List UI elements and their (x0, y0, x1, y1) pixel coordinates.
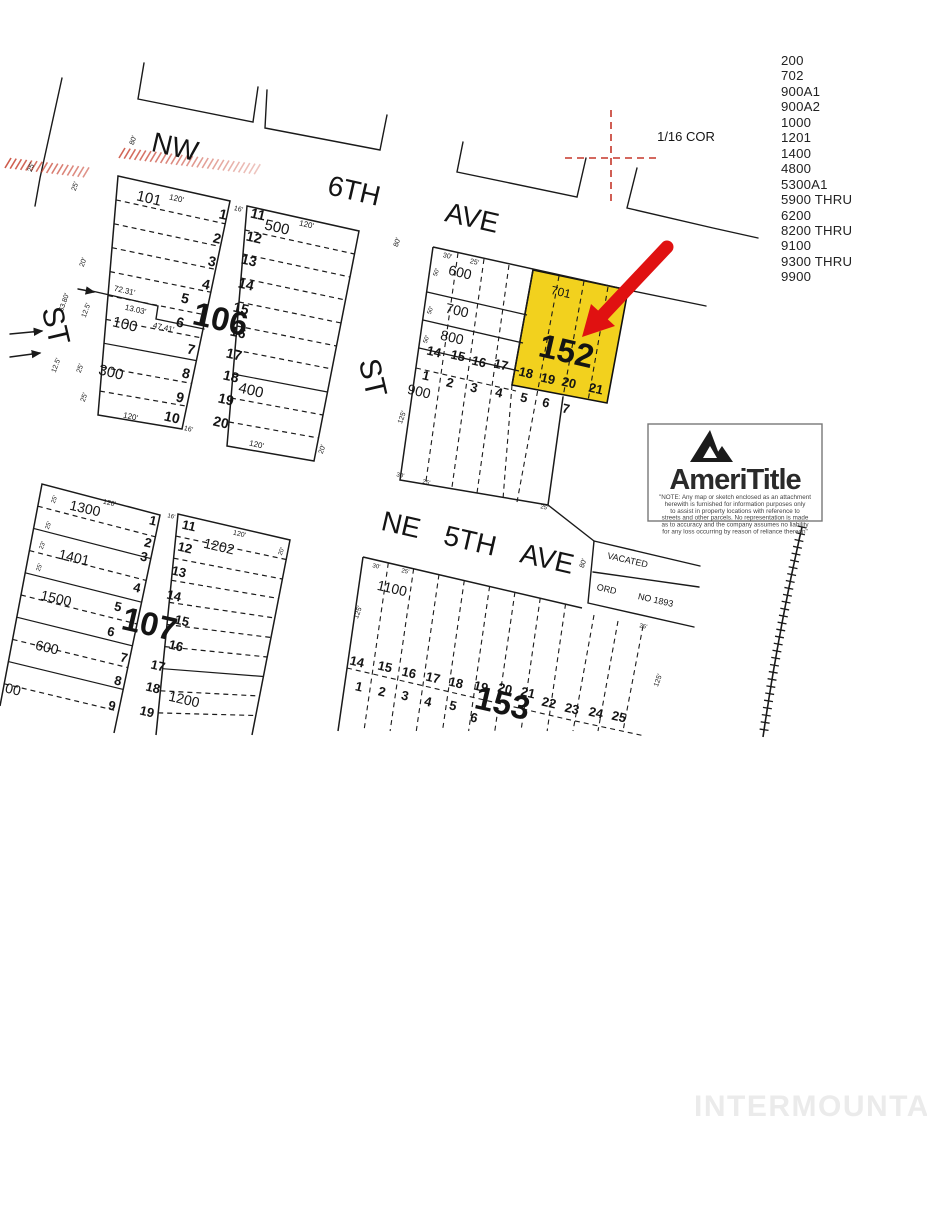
hatch-stroke (119, 148, 125, 158)
lot-number: 3 (469, 379, 479, 395)
lot-number: 6 (541, 394, 551, 410)
dimension: 120' (168, 193, 185, 205)
lot-number: 9 (175, 388, 186, 405)
map-labels: NW6THAVESTSTNE5THAVE1/16 COR101100300500… (4, 126, 715, 727)
watermark: INTERMOUNTAIN (694, 1090, 927, 1124)
parcel-number: 1200 (167, 688, 201, 711)
railroad-tie (776, 629, 785, 631)
lot-number: 11 (181, 517, 198, 535)
lot-line (426, 253, 458, 481)
dimension: 125' (653, 673, 664, 688)
block-106-right (227, 206, 359, 461)
hatch-stroke (10, 159, 16, 169)
lot-number: 3 (139, 548, 149, 564)
dimension: 25' (45, 521, 53, 530)
railroad-tie (790, 560, 799, 562)
lot-line (243, 254, 350, 277)
parcel-number: 101 (135, 188, 163, 210)
railroad-tie (784, 587, 793, 589)
dimension: 80' (129, 135, 139, 146)
lot-line (231, 398, 323, 415)
parcel-number: 100 (111, 314, 139, 336)
lot-number: 5 (180, 289, 191, 306)
railroad-tie (779, 615, 788, 617)
lot-line (112, 248, 216, 270)
dimension: 50' (433, 268, 441, 277)
lot-number: 12 (176, 539, 193, 557)
lot-number: 11 (249, 205, 267, 224)
lot-line (239, 302, 341, 323)
lot-number: 5 (519, 389, 529, 405)
dimension: 20' (278, 547, 286, 556)
parcel-number: 800 (439, 327, 466, 348)
hatch-stroke (52, 164, 58, 174)
hatch-stroke (228, 161, 234, 171)
logo-disclaimer: "NOTE: Any map or sketch enclosed as an … (659, 494, 811, 536)
hatch-stroke (124, 149, 130, 159)
lot-number: 22 (540, 694, 557, 712)
railroad-track (760, 526, 807, 737)
hatch-stroke (73, 166, 79, 176)
dimension: 20' (79, 257, 89, 268)
lot-line (229, 422, 319, 438)
railroad-tie (786, 581, 795, 583)
lot-number: 8 (181, 364, 192, 381)
lot-line (116, 200, 225, 224)
railroad-tie (787, 574, 796, 576)
lot-number: 1 (421, 367, 431, 383)
street-st-left: ST (35, 303, 76, 348)
railroad-tie (774, 643, 783, 645)
parcel-number: 1401 (57, 546, 91, 569)
block-106-right-outline (227, 206, 359, 461)
parcel-number: 00 (4, 680, 23, 699)
railroad-tie (782, 601, 791, 603)
railroad-tie (775, 636, 784, 638)
lot-number: 3 (400, 687, 410, 703)
dimension: 25' (51, 495, 59, 504)
hatch-stroke (62, 165, 68, 175)
railroad-tie (762, 715, 771, 716)
lot-number: 7 (119, 649, 129, 665)
lot-number: 9 (107, 697, 117, 713)
parcel-number: 1202 (202, 535, 236, 558)
vacated-label: VACATED (606, 551, 649, 570)
lot-number: 12 (245, 228, 264, 247)
dimension: 125' (397, 410, 408, 425)
lot-number: 17 (424, 669, 441, 687)
dimension: 120' (102, 499, 116, 509)
block-outline-top-u1 (138, 63, 258, 122)
lot-number: 17 (225, 345, 244, 364)
logo-disclaimer-line: for any loss occurring by reason of reli… (662, 529, 807, 536)
railroad-tie (761, 722, 770, 723)
dimension: 30' (372, 563, 381, 571)
railroad-tie (763, 707, 772, 708)
lot-number: 8 (113, 672, 123, 688)
parcel-list: 200 702 900A1 900A2 1000 1201 1400 4800 … (781, 53, 852, 285)
hatch-stroke (135, 150, 141, 160)
lot-number: 6 (175, 313, 186, 330)
dimension: 80' (393, 237, 403, 248)
parcel-number: 600 (34, 637, 61, 658)
lot-line (34, 528, 151, 558)
railroad-tie (768, 679, 777, 680)
lot-number: 18 (447, 674, 464, 692)
street-6th-ave: AVE (442, 197, 502, 239)
hatch-stroke (83, 167, 89, 177)
parcel-number: 900 (406, 381, 433, 402)
lot-number: 17 (492, 356, 509, 374)
dimension: 13.03' (124, 303, 147, 317)
lot-line (163, 669, 264, 677)
lot-line (235, 350, 332, 369)
railroad-tie (764, 700, 773, 701)
railroad-tie (766, 686, 775, 687)
lot-number: 7 (186, 340, 197, 357)
street-5th: 5TH (441, 520, 500, 562)
lot-number: 4 (423, 693, 434, 709)
lot-number: 14 (348, 653, 366, 671)
hatch-stroke (129, 149, 135, 159)
dimension: 25' (422, 479, 431, 487)
lot-line (158, 713, 256, 716)
lot-number: 2 (377, 683, 387, 699)
hatch-stroke (244, 163, 250, 173)
hatch-stroke (218, 160, 224, 170)
parcel-number: 1100 (376, 577, 409, 599)
dimension: 125' (353, 605, 364, 620)
lot-line (104, 343, 196, 360)
lot-number: 4 (132, 579, 143, 595)
dimension: 72.31' (113, 284, 136, 298)
railroad-tie (760, 729, 769, 730)
lot-number: 2 (445, 374, 455, 390)
lot-number: 19 (217, 390, 236, 409)
hatch-stroke (5, 158, 11, 168)
dimension: 25' (401, 568, 410, 576)
hatch-stroke (213, 159, 219, 169)
dimension: 16' (233, 205, 243, 214)
dimension: 25' (540, 504, 549, 512)
lot-number: 17 (149, 657, 166, 675)
dimension: 12.5' (51, 357, 63, 373)
ameritit-logo-box: AmeriTitle "NOTE: Any map or sketch encl… (648, 424, 822, 536)
lot-line (241, 278, 346, 300)
lot-number: 19 (138, 703, 155, 721)
lot-line (114, 224, 220, 247)
hatch-stroke (249, 164, 255, 174)
hatch-stroke (202, 158, 208, 168)
lot-number: 18 (144, 679, 161, 697)
lot-line (174, 558, 283, 579)
lot-line (477, 265, 509, 493)
street-ne: NE (379, 505, 424, 544)
dimension: 25' (71, 181, 81, 192)
railroad-line (763, 527, 802, 737)
lot-number: 18 (222, 367, 241, 386)
lot-number: 5 (113, 598, 123, 614)
sixth-ave-north-line-east (627, 168, 758, 238)
line-east-of-parcel (628, 290, 706, 306)
lot-line (13, 639, 128, 667)
lot-number: 1 (148, 512, 158, 528)
sixth-ave-north-line (457, 142, 586, 197)
dimension: 25' (639, 623, 648, 631)
dimension: 25' (36, 563, 44, 572)
lot-number: 16 (400, 664, 417, 682)
dimension: 120' (248, 439, 265, 451)
dimension: 23' (39, 541, 47, 550)
ord-label: ORD (596, 582, 618, 596)
railroad-tie (769, 672, 778, 674)
lot-number: 16 (167, 637, 184, 655)
lot-line (503, 385, 512, 499)
hatch-stroke (21, 160, 27, 170)
block-outline-top-left-street-edge (35, 78, 62, 206)
logo-name: AmeriTitle (669, 464, 801, 496)
lot-line (237, 326, 337, 346)
lot-number: 14 (165, 587, 183, 605)
dimension: 50' (427, 306, 435, 315)
railroad-tie (765, 693, 774, 694)
hatch-stroke (197, 157, 203, 167)
dimension: 12.5' (81, 302, 93, 318)
lot-line (171, 580, 278, 598)
dimension: 16' (183, 425, 193, 434)
lot-number: 1 (354, 678, 364, 694)
lot-line (17, 617, 133, 646)
street-st-mid: ST (352, 355, 393, 400)
parcel-number: 1500 (39, 587, 73, 610)
dimension: 120' (122, 411, 139, 423)
railroad-tie (780, 608, 789, 610)
dimension: 16' (167, 513, 176, 521)
lot-number: 15 (449, 347, 466, 365)
hatch-stroke (223, 160, 229, 170)
lot-number: 23 (563, 700, 580, 718)
parcel-number: 400 (237, 380, 265, 402)
lot-line (8, 662, 123, 690)
lot-number: 14 (425, 343, 443, 361)
lot-number: 13 (170, 563, 187, 581)
hatch-stroke (140, 150, 146, 160)
railroad-tie (783, 594, 792, 596)
lot-number: 10 (163, 408, 182, 427)
hatch-stroke (207, 159, 213, 169)
parcel-number: 1300 (68, 497, 102, 520)
ord-number-label: NO 1893 (637, 591, 674, 609)
lot-number: 15 (376, 658, 393, 676)
railroad-tie (770, 664, 779, 666)
railroad-tie (778, 622, 787, 624)
railroad-tie (771, 657, 780, 659)
street-6th: 6TH (325, 170, 384, 212)
tick-arrow (10, 331, 42, 334)
dimension: 30' (396, 472, 405, 480)
street-lines (10, 63, 758, 627)
dimension: 120' (232, 530, 246, 540)
block-outline-top-u2 (265, 90, 387, 150)
lot-number: 6 (106, 623, 116, 639)
hatch-stroke (47, 163, 53, 173)
lot-number: 24 (587, 704, 605, 722)
hatch-stroke (67, 165, 73, 175)
lot-number: 4 (494, 384, 505, 400)
lot-number: 4 (201, 275, 212, 292)
hatch-stroke (57, 164, 63, 174)
dimension: 20' (318, 444, 328, 455)
lot-number: 5 (448, 697, 458, 713)
hatch-stroke (239, 162, 245, 172)
lot-number: 25 (610, 708, 627, 726)
dimension: 30' (442, 252, 452, 261)
railroad-tie (792, 553, 801, 555)
parcel-number: 700 (444, 300, 471, 321)
sixteenth-corner-label: 1/16 COR (657, 129, 715, 144)
tick-arrow (10, 353, 40, 357)
lot-number: 16 (470, 353, 487, 371)
hatch-stroke (233, 162, 239, 172)
dimension: 25' (76, 363, 86, 374)
hatch-stroke (78, 167, 84, 177)
street-5th-ave: AVE (517, 538, 577, 580)
dimension: 80' (579, 558, 589, 569)
hatch-stroke (15, 159, 21, 169)
hatch-stroke (254, 164, 260, 174)
lot-line (100, 391, 187, 406)
railroad-tie (772, 650, 781, 652)
dimension: 25' (80, 392, 90, 403)
railroad-tie (789, 567, 798, 569)
lot-line (452, 259, 484, 487)
ne5th-north-line-east (548, 505, 594, 541)
